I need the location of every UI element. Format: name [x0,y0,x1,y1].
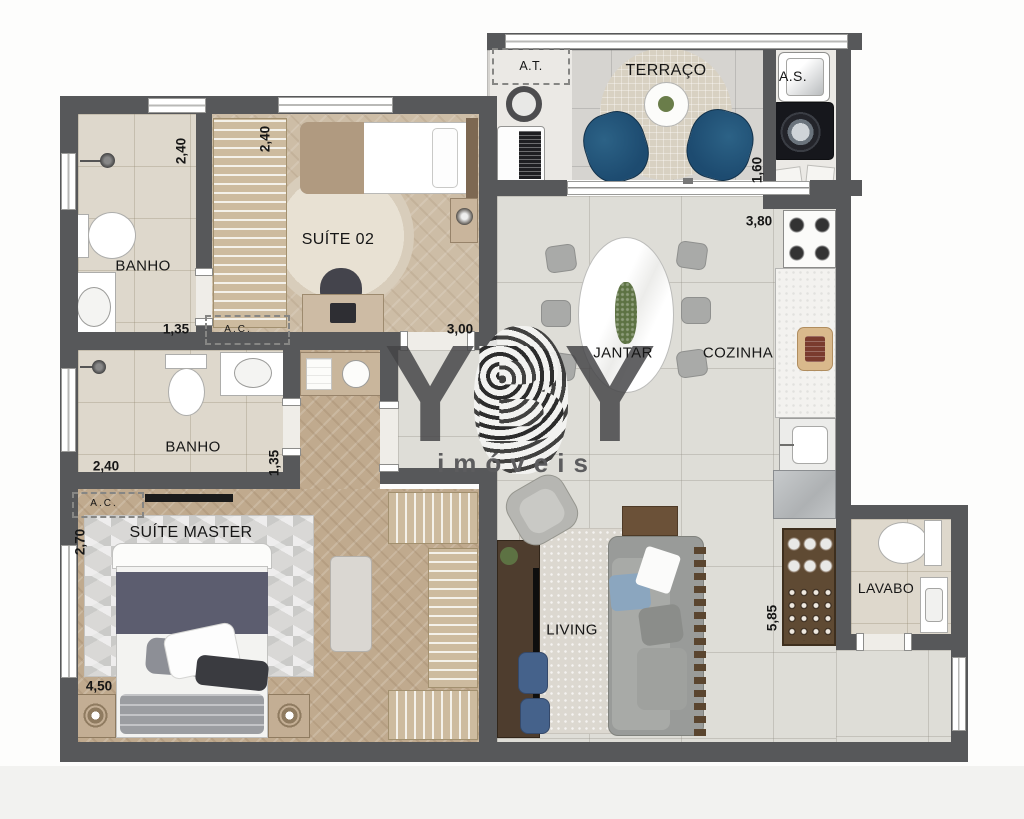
fridge [773,470,836,519]
room-label-suite02: SUÍTE 02 [302,232,375,248]
suite02-lamp-icon [456,208,473,225]
sofa-cushion-lower [637,648,687,710]
dining-chair [544,243,577,274]
room-label-lavabo: LAVABO [858,581,914,595]
suite02-headboard [466,118,478,198]
room-label-cozinha: COZINHA [703,346,773,361]
bar-cabinet-plates [786,533,834,581]
master-bench [330,556,372,652]
dim-cozinha-width: 3,80 [746,214,772,228]
sink-basin [234,358,272,388]
wall [60,742,968,762]
hall-floor [836,650,951,742]
lavabo-basin [925,588,943,622]
dim-banho2-width: 2,40 [93,459,119,473]
suite02-bed-pillow [432,128,458,188]
dining-chair [541,300,571,327]
ottoman-blue [520,698,550,734]
room-label-ac2: A.C. [90,499,117,509]
kitchen-tap-icon [780,444,794,446]
door-jamb [856,633,864,651]
closet-rack-right [428,548,478,688]
wall-tv-screen [145,494,233,502]
dim-living-depth: 5,85 [765,605,779,631]
toilet-bowl [88,212,136,259]
floor-plan: Y B Y imóveis BANHO SUÍTE 02 TERRAÇO A.T… [0,0,1024,819]
suite02-closet [213,118,287,328]
dim-banho1-length: 1,35 [163,322,189,336]
vanity-towels [306,358,332,390]
wall [763,48,776,193]
window [61,545,77,678]
suite02-laptop-icon [330,303,356,323]
dim-banho1-width: 2,40 [174,138,188,164]
wall [908,634,951,650]
room-label-jantar: JANTAR [593,346,653,361]
shower-head-icon [92,360,106,374]
room-label-suite-master: SUÍTE MASTER [129,525,252,541]
room-label-banho1: BANHO [115,259,170,274]
toilet-tank [165,354,207,369]
dim-suite02-closet: 2,40 [258,126,272,152]
wall [380,350,398,405]
console-plant-icon [500,547,518,565]
bar-cabinet-wine-rack [786,586,834,641]
page-background-strip [0,766,1024,819]
dim-master-depth: 2,70 [73,529,87,555]
wall [763,193,836,209]
wall [60,472,300,489]
closet-rack-top [388,492,478,544]
cutting-board-food [805,336,825,362]
door-opening [196,272,212,320]
watermark-subtitle: imóveis [372,448,662,479]
terraco-plant-icon [658,96,674,112]
toilet-bowl [168,368,205,416]
ottoman-blue [518,652,548,694]
master-bed-blanket [116,572,268,634]
washing-machine [772,102,834,160]
dim-master-width: 4,50 [86,679,112,693]
wall [487,180,567,196]
door-opening [283,402,300,452]
window [505,34,848,49]
toilet-tank [924,520,942,566]
sliding-door-handle [683,178,693,184]
door-opening [860,634,908,650]
cooktop [783,210,836,268]
wall [479,468,497,762]
door-jamb [400,331,408,351]
wall [479,96,497,350]
room-label-area-tecnica: A.T. [519,60,542,73]
toilet-bowl [878,522,928,564]
window [61,368,76,452]
wall [283,350,300,402]
dim-suite02-width: 3,00 [447,322,473,336]
master-folded-blankets [120,694,264,734]
vanity-basin [342,360,370,388]
room-label-ac1: A.C. [224,325,251,335]
door-jamb [195,268,213,276]
dining-chair [681,297,711,324]
shower-head-icon [100,153,115,168]
dining-centerpiece-plant-icon [615,282,637,344]
room-label-banho2: BANHO [165,440,220,455]
suite02-bed-blanket [300,122,364,194]
room-label-living: LIVING [546,623,598,638]
closet-rack-bottom [388,690,478,740]
window [148,98,206,113]
sink-basin [77,287,111,327]
side-table [622,506,678,536]
wall [836,505,968,519]
door-jamb [904,633,912,651]
door-jamb [282,448,301,456]
dining-chair [675,240,708,271]
door-jamb [379,401,399,409]
door-jamb [282,398,301,406]
ac-condenser-grid [519,131,541,179]
nightstand-lamp-icon [276,702,303,729]
nightstand-lamp-icon [82,702,109,729]
kitchen-sink-basin [792,426,828,464]
slat-divider [694,546,706,736]
window [278,97,393,113]
wall [836,519,851,650]
window [952,657,966,731]
grill-icon [506,86,542,122]
window [61,153,76,210]
room-label-terraco: TERRAÇO [625,63,706,79]
sofa-cushion-gray [638,603,685,646]
dim-terraco-depth: 1,60 [750,157,764,183]
room-label-area-servico: A.S. [779,69,807,83]
dim-banho2-depth: 1,35 [267,450,281,476]
wall [836,33,851,505]
